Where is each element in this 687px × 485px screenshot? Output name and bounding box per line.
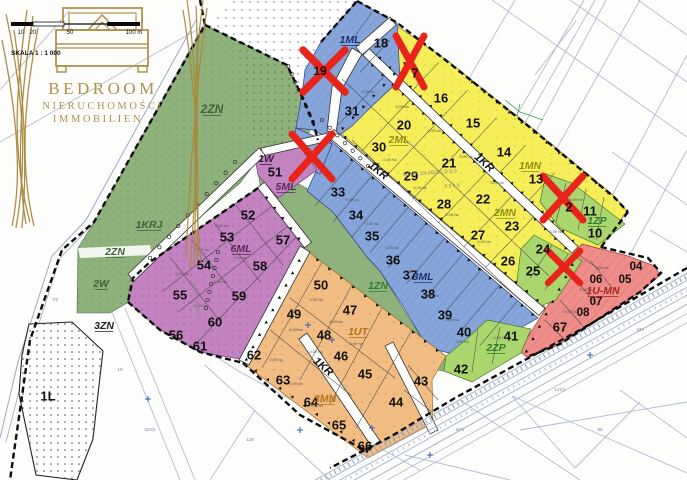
svg-text:49: 49 bbox=[287, 306, 301, 321]
svg-text:2ML: 2ML bbox=[388, 134, 410, 146]
svg-text:0,09 ha: 0,09 ha bbox=[569, 197, 583, 202]
svg-text:31: 31 bbox=[345, 103, 359, 118]
svg-text:128: 128 bbox=[246, 437, 254, 442]
svg-text:10: 10 bbox=[588, 225, 602, 240]
svg-text:18: 18 bbox=[374, 35, 388, 50]
svg-text:07: 07 bbox=[590, 296, 603, 308]
svg-text:36: 36 bbox=[386, 252, 400, 267]
svg-text:100 m: 100 m bbox=[126, 30, 143, 36]
svg-text:2ZP: 2ZP bbox=[485, 342, 506, 354]
svg-text:60: 60 bbox=[208, 314, 222, 329]
svg-text:61: 61 bbox=[193, 338, 207, 353]
svg-text:2MN: 2MN bbox=[493, 207, 517, 219]
svg-text:0,09 ha: 0,09 ha bbox=[549, 229, 563, 234]
svg-text:0,09 ha: 0,09 ha bbox=[213, 279, 227, 284]
svg-text:7: 7 bbox=[411, 65, 418, 80]
svg-text:0,09 ha: 0,09 ha bbox=[455, 339, 469, 344]
svg-text:324/2: 324/2 bbox=[144, 427, 156, 432]
svg-text:1UT: 1UT bbox=[348, 326, 369, 338]
svg-text:0,09 ha: 0,09 ha bbox=[175, 271, 189, 276]
svg-text:43: 43 bbox=[414, 373, 428, 388]
svg-text:04: 04 bbox=[630, 261, 643, 273]
svg-text:40: 40 bbox=[457, 324, 471, 339]
svg-text:6ML: 6ML bbox=[231, 243, 252, 255]
svg-text:51: 51 bbox=[268, 164, 282, 179]
svg-text:35: 35 bbox=[365, 228, 379, 243]
svg-text:44: 44 bbox=[389, 394, 404, 409]
svg-text:0,09 ha: 0,09 ha bbox=[383, 157, 397, 162]
svg-text:0,09 ha: 0,09 ha bbox=[349, 341, 363, 346]
svg-text:56: 56 bbox=[169, 327, 183, 342]
svg-text:0,09 ha: 0,09 ha bbox=[309, 297, 323, 302]
svg-text:54: 54 bbox=[197, 257, 212, 272]
svg-text:34: 34 bbox=[349, 207, 364, 222]
svg-text:25: 25 bbox=[526, 263, 540, 278]
svg-text:1W: 1W bbox=[258, 153, 275, 165]
svg-text:5ML: 5ML bbox=[276, 181, 297, 193]
svg-text:24: 24 bbox=[536, 241, 551, 256]
svg-text:0,09 ha: 0,09 ha bbox=[493, 335, 507, 340]
svg-text:0,09 ha: 0,09 ha bbox=[579, 287, 593, 292]
svg-text:BEDROOM: BEDROOM bbox=[48, 79, 158, 98]
svg-text:23: 23 bbox=[505, 218, 519, 233]
svg-text:52: 52 bbox=[241, 207, 255, 222]
svg-text:65: 65 bbox=[332, 417, 346, 432]
svg-text:0,09 ha: 0,09 ha bbox=[269, 357, 283, 362]
svg-text:1L: 1L bbox=[40, 388, 55, 403]
svg-text:19: 19 bbox=[313, 64, 327, 78]
svg-text:28: 28 bbox=[437, 196, 451, 211]
svg-text:50: 50 bbox=[314, 277, 328, 292]
svg-text:50: 50 bbox=[67, 30, 74, 36]
svg-text:0,09 ha: 0,09 ha bbox=[365, 221, 379, 226]
svg-text:0,09 ha: 0,09 ha bbox=[595, 265, 609, 270]
svg-text:10: 10 bbox=[18, 30, 25, 36]
svg-text:7/2: 7/2 bbox=[52, 297, 59, 302]
svg-text:2ZN: 2ZN bbox=[104, 246, 125, 258]
svg-text:45: 45 bbox=[358, 366, 372, 381]
svg-text:1ML: 1ML bbox=[340, 34, 361, 46]
svg-text:33: 33 bbox=[331, 184, 345, 199]
svg-text:0,09 ha: 0,09 ha bbox=[385, 245, 399, 250]
svg-text:26: 26 bbox=[501, 253, 515, 268]
svg-text:0,09 ha: 0,09 ha bbox=[309, 403, 323, 408]
svg-text:0,09 ha: 0,09 ha bbox=[405, 269, 419, 274]
svg-text:1KRJ: 1KRJ bbox=[136, 219, 164, 231]
svg-text:0,09 ha: 0,09 ha bbox=[459, 154, 473, 159]
svg-text:59: 59 bbox=[232, 288, 246, 303]
svg-text:IMMOBILIEN: IMMOBILIEN bbox=[53, 114, 143, 125]
svg-text:0,09 ha: 0,09 ha bbox=[563, 309, 577, 314]
svg-text:NIERUCHOMOŚCI: NIERUCHOMOŚCI bbox=[42, 100, 163, 112]
svg-text:58: 58 bbox=[253, 258, 267, 273]
svg-text:0,09 ha: 0,09 ha bbox=[215, 223, 229, 228]
svg-text:14: 14 bbox=[497, 144, 512, 159]
svg-text:0,09 ha: 0,09 ha bbox=[345, 197, 359, 202]
svg-text:08: 08 bbox=[577, 307, 590, 319]
svg-text:0,09 ha: 0,09 ha bbox=[445, 317, 459, 322]
svg-text:0,09 ha: 0,09 ha bbox=[289, 327, 303, 332]
svg-text:22: 22 bbox=[476, 191, 490, 206]
svg-text:55/4: 55/4 bbox=[456, 427, 465, 432]
svg-text:0,09 ha: 0,09 ha bbox=[477, 239, 491, 244]
svg-text:66: 66 bbox=[358, 438, 372, 453]
svg-text:05: 05 bbox=[619, 274, 632, 286]
svg-text:88: 88 bbox=[597, 427, 603, 432]
svg-text:67: 67 bbox=[553, 319, 567, 334]
svg-text:0,09 ha: 0,09 ha bbox=[445, 212, 459, 217]
svg-text:16: 16 bbox=[434, 90, 448, 105]
svg-text:46: 46 bbox=[334, 348, 348, 363]
svg-text:141/2: 141/2 bbox=[554, 387, 566, 392]
svg-text:2W: 2W bbox=[92, 278, 110, 290]
svg-text:324: 324 bbox=[636, 327, 644, 332]
svg-text:0,09 ha: 0,09 ha bbox=[395, 104, 409, 109]
svg-text:42: 42 bbox=[454, 361, 468, 376]
svg-text:30: 30 bbox=[372, 139, 386, 154]
svg-text:0,09 ha: 0,09 ha bbox=[427, 128, 441, 133]
svg-text:57: 57 bbox=[276, 232, 290, 247]
svg-text:0,09 ha: 0,09 ha bbox=[413, 185, 427, 190]
svg-text:63: 63 bbox=[276, 372, 290, 387]
svg-text:0,09 ha: 0,09 ha bbox=[289, 381, 303, 386]
svg-text:48: 48 bbox=[317, 327, 331, 342]
svg-text:2ZN: 2ZN bbox=[200, 102, 224, 116]
svg-text:3ZN: 3ZN bbox=[94, 320, 114, 332]
svg-text:20: 20 bbox=[397, 117, 411, 132]
svg-text:55: 55 bbox=[173, 287, 187, 302]
svg-text:1ZP: 1ZP bbox=[587, 215, 607, 227]
svg-text:0,09 ha: 0,09 ha bbox=[329, 319, 343, 324]
svg-text:13: 13 bbox=[529, 171, 543, 186]
svg-text:0,09 ha: 0,09 ha bbox=[490, 180, 504, 185]
svg-text:1MN: 1MN bbox=[519, 160, 542, 172]
svg-text:19: 19 bbox=[117, 367, 123, 372]
svg-text:62: 62 bbox=[247, 347, 261, 362]
svg-text:15: 15 bbox=[466, 115, 480, 130]
svg-text:20: 20 bbox=[30, 30, 37, 36]
svg-text:1ZN: 1ZN bbox=[368, 280, 388, 292]
svg-text:0,09 ha: 0,09 ha bbox=[309, 349, 323, 354]
svg-text:0,09 ha: 0,09 ha bbox=[425, 293, 439, 298]
svg-text:47: 47 bbox=[343, 302, 357, 317]
svg-text:0,09 ha: 0,09 ha bbox=[233, 255, 247, 260]
svg-text:9 9 9 9: 9 9 9 9 bbox=[444, 183, 460, 190]
svg-text:SKALA 1 : 1 000: SKALA 1 : 1 000 bbox=[11, 50, 61, 57]
svg-text:0,09 ha: 0,09 ha bbox=[361, 89, 375, 94]
